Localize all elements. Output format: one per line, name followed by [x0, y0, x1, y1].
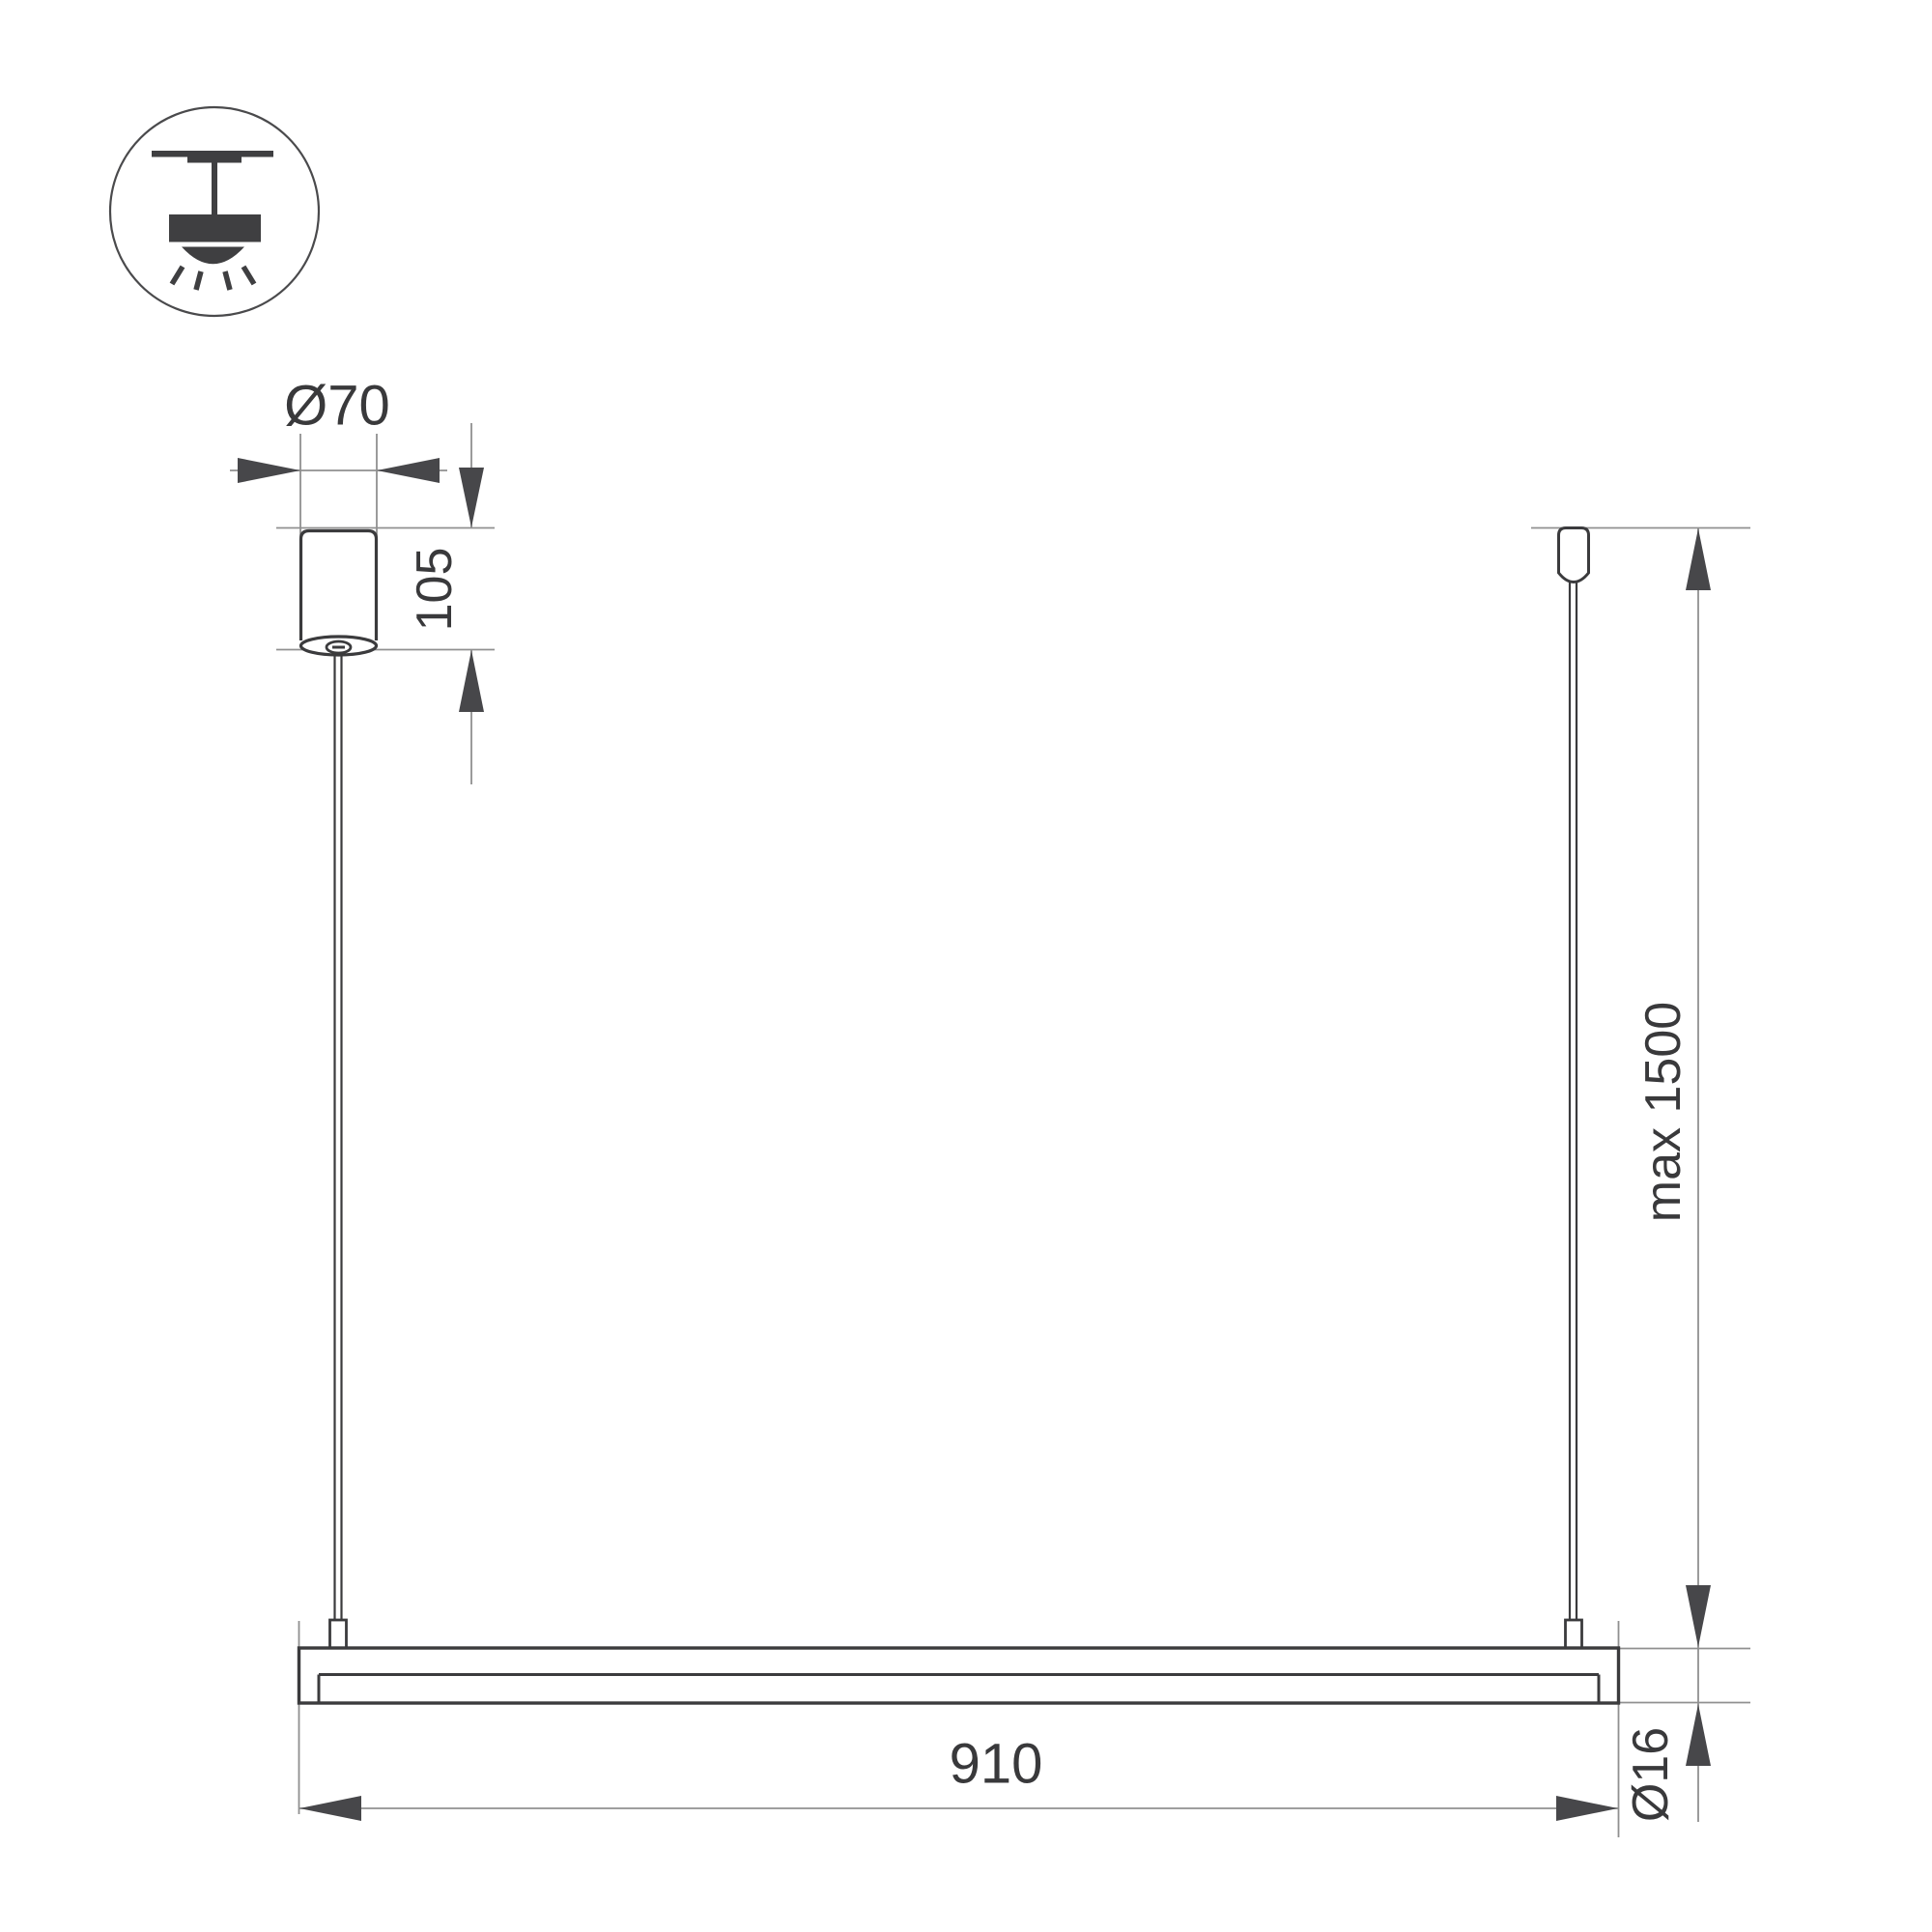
arrowhead — [1556, 1796, 1618, 1821]
max-suspension-label: max 1500 — [1635, 1002, 1691, 1222]
fixture-length-label: 910 — [950, 1733, 1043, 1796]
tube-diameter-label: Ø16 — [1623, 1727, 1679, 1822]
suspension-wire-right — [1570, 582, 1577, 1620]
canopy-diameter-label: Ø70 — [284, 375, 390, 438]
icon-ceiling-line — [152, 151, 273, 157]
wire-connector-left — [330, 1620, 347, 1649]
arrowhead — [1686, 1704, 1711, 1766]
arrowhead — [1686, 1585, 1711, 1647]
canopy-height-label: 105 — [407, 548, 463, 632]
arrowheads — [238, 458, 1711, 1821]
canopy-body — [301, 531, 377, 641]
dimension-labels: Ø70 105 max 1500 910 Ø16 — [284, 375, 1691, 1823]
ceiling-fitting-right — [1559, 528, 1589, 582]
technical-drawing-page: Ø70 105 max 1500 910 Ø16 — [0, 0, 1932, 1932]
lamp-bar — [299, 1648, 1619, 1703]
arrowhead — [299, 1796, 361, 1821]
pendant-lamp-dimension-drawing: Ø70 105 max 1500 910 Ø16 — [0, 0, 1932, 1932]
canopy-assembly — [301, 531, 377, 1650]
arrowhead — [1686, 528, 1711, 590]
icon-canopy-plate — [187, 157, 241, 163]
wire-connector-right — [1566, 1620, 1582, 1649]
ceiling-pendant-icon — [110, 107, 319, 316]
arrowhead — [459, 468, 484, 527]
icon-stem — [212, 162, 217, 215]
icon-lamp-body — [169, 214, 261, 242]
arrowhead — [459, 650, 484, 712]
suspension-wire-left — [335, 653, 342, 1620]
arrowhead — [238, 458, 300, 483]
arrowhead — [377, 458, 440, 483]
right-suspension-assembly — [1559, 528, 1589, 1650]
dimension-lines — [230, 423, 1750, 1837]
